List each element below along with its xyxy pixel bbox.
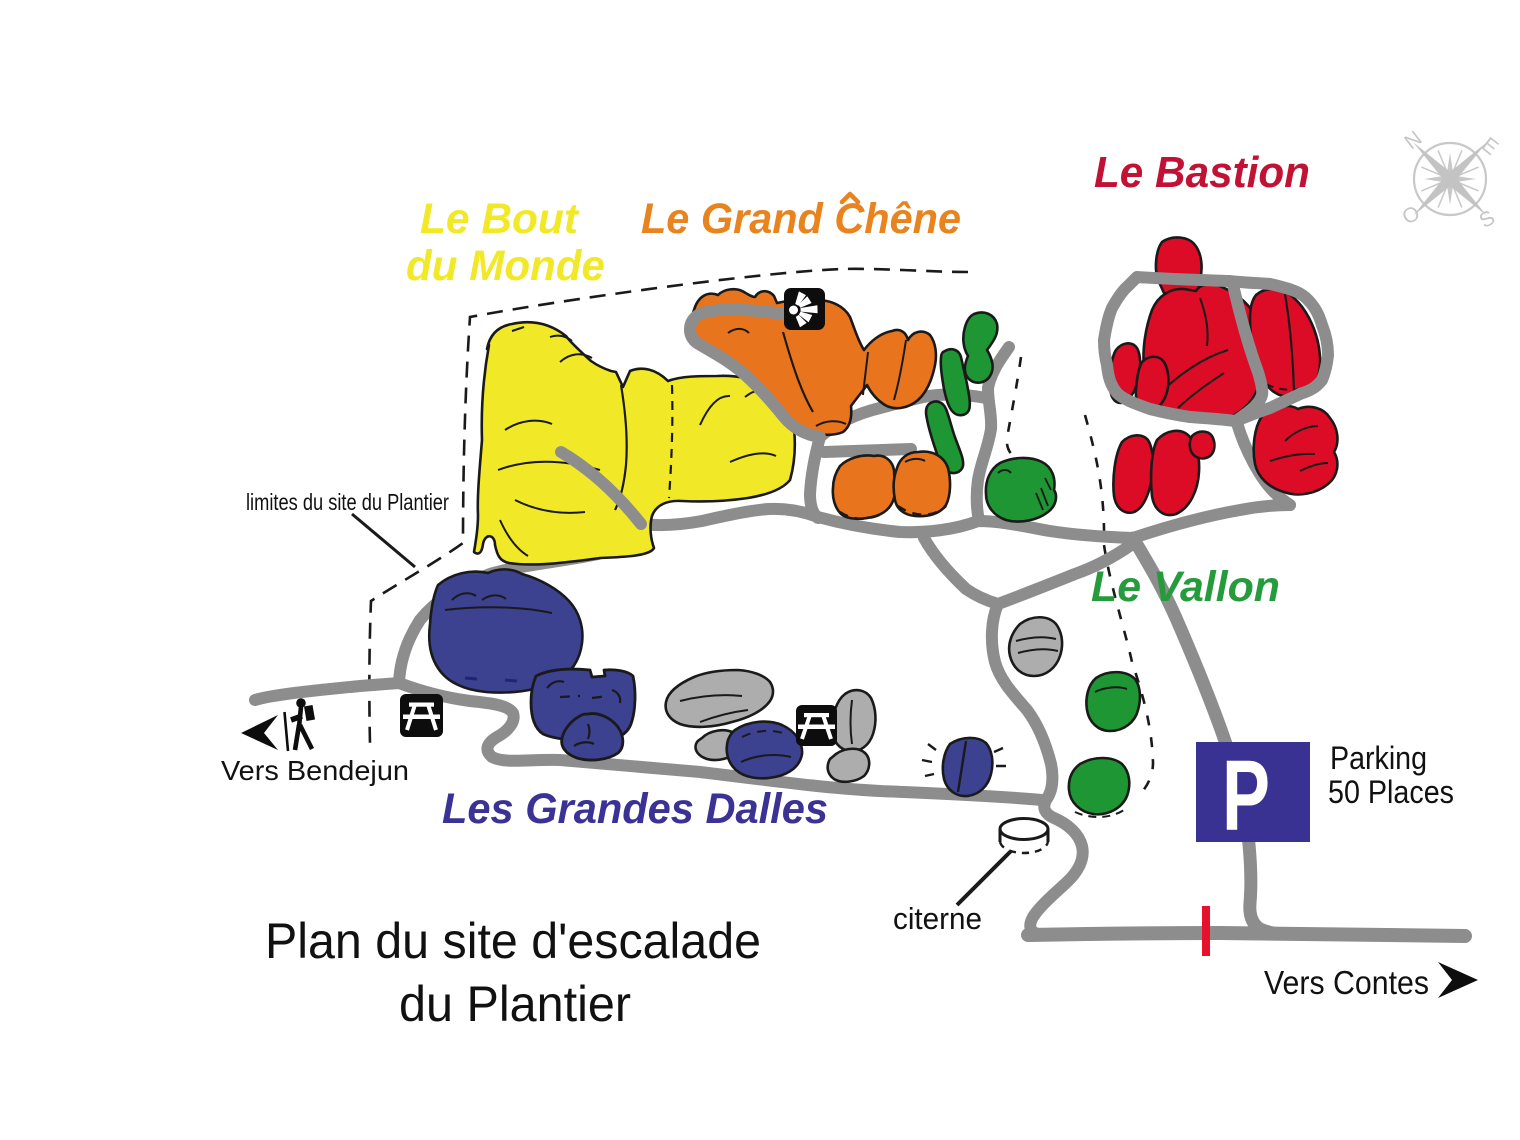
svg-text:Le Bastion: Le Bastion [1094,148,1310,197]
svg-text:Parking: Parking [1330,740,1427,776]
svg-text:Vers Contes: Vers Contes [1264,964,1429,1001]
svg-text:du Plantier: du Plantier [399,976,631,1032]
svg-text:50 Places: 50 Places [1328,774,1454,810]
svg-text:P: P [1222,740,1270,852]
svg-text:Le Bout: Le Bout [420,195,580,243]
svg-text:Le Vallon: Le Vallon [1091,563,1280,611]
svg-text:Plan du site d'escalade: Plan du site d'escalade [265,913,761,969]
svg-text:Les Grandes Dalles: Les Grandes Dalles [442,785,828,833]
svg-text:limites du site du Plantier: limites du site du Plantier [246,489,449,515]
svg-text:du Monde: du Monde [406,242,605,290]
svg-text:Vers Bendejun: Vers Bendejun [221,755,409,786]
svg-text:citerne: citerne [893,901,982,936]
svg-text:Le Grand Chêne: Le Grand Chêne [641,195,961,243]
